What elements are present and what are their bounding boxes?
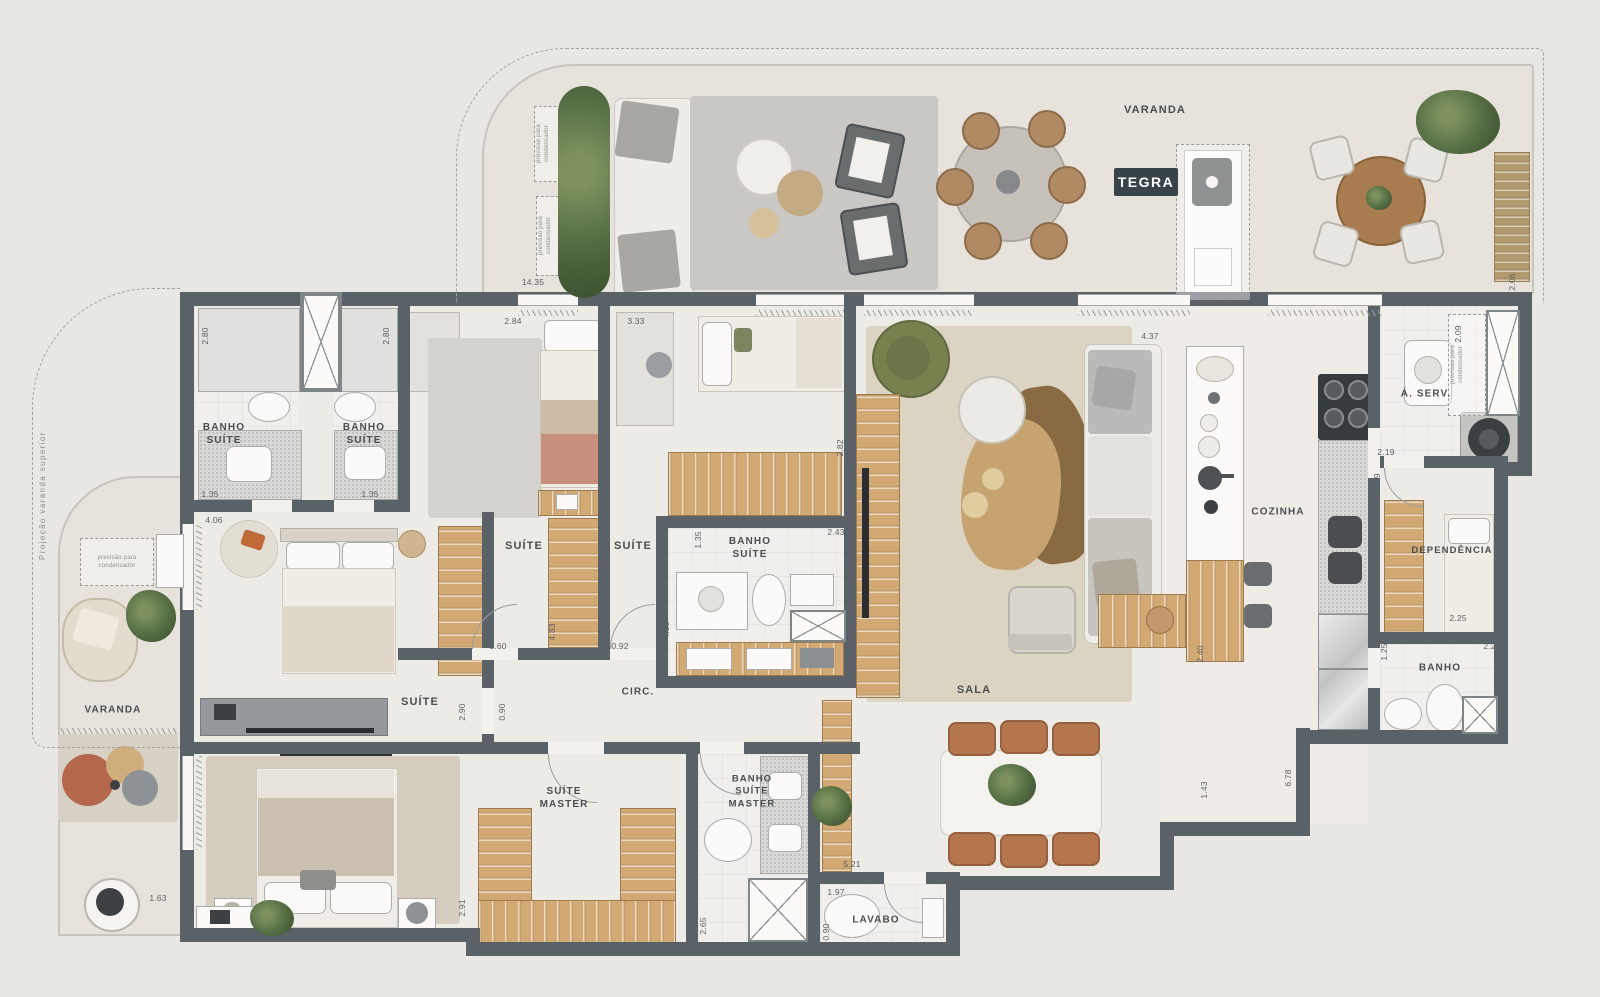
bed-blanket (541, 434, 605, 484)
window (518, 294, 578, 306)
bed-foot-bench (258, 770, 394, 798)
room-label-suite-1: SUÍTE (401, 695, 439, 709)
nightstand-decor (406, 902, 428, 924)
area-rug (428, 338, 542, 518)
shower (334, 308, 398, 392)
dimension-label: 2.65 (698, 917, 708, 934)
door-opening (252, 500, 292, 512)
dining-chair (1000, 720, 1048, 754)
dimension-label: 3.33 (627, 316, 644, 326)
dimension-label: 2.84 (504, 316, 521, 326)
tv-screen (862, 468, 869, 618)
wall (398, 292, 410, 512)
window (1268, 294, 1382, 306)
dimension-label: 4.06 (205, 515, 222, 525)
wall (656, 516, 668, 688)
kitchen-sink (1328, 516, 1362, 548)
corner-plant (1416, 90, 1500, 154)
pan-handle (1220, 474, 1234, 478)
dimension-label: 1.63 (149, 893, 166, 903)
projection-outline-left (32, 288, 181, 748)
wall (180, 928, 480, 942)
dimension-label: 6.53 (633, 743, 650, 753)
toilet (334, 392, 376, 422)
dimension-label: 2.09 (1372, 473, 1382, 490)
plant (812, 786, 852, 826)
shower-box (1462, 696, 1498, 734)
bed-pillow (702, 322, 732, 386)
dimension-label: 2.82 (835, 439, 845, 456)
room-label-banho-suite-1: BANHO SUÍTE (203, 421, 245, 447)
wall (946, 876, 1174, 890)
provision-annotation: previsão para condensador (98, 554, 137, 570)
dimension-label: 4.83 (547, 623, 557, 640)
room-label-suite-3: SUÍTE (614, 539, 652, 553)
kettle (1204, 500, 1218, 514)
plate (1200, 414, 1218, 432)
room-label-banho-suite-master: BANHO SUÍTE MASTER (729, 773, 776, 810)
dining-chair (1052, 832, 1100, 866)
mirror-wardrobe (1318, 614, 1372, 730)
wardrobe (668, 452, 842, 516)
curtain (756, 310, 844, 316)
dimension-label: 0.90 (821, 923, 831, 940)
projection-outline-top (456, 48, 1544, 303)
door-opening (548, 742, 604, 754)
room-label-lavabo: LAVABO (852, 914, 899, 927)
wall (808, 872, 820, 956)
washbasin (922, 898, 944, 938)
room-label-banho-suite-2: BANHO SUÍTE (343, 421, 385, 447)
dimension-label: 1.43 (1199, 781, 1209, 798)
shower-box (748, 878, 808, 942)
fruit-bowl (1196, 356, 1234, 382)
floor-plan: Projeção varanda superior previsão para … (0, 0, 1600, 997)
window (1078, 294, 1190, 306)
dimension-label: 1.35 (693, 531, 703, 548)
table-plant (988, 764, 1036, 806)
dimension-label: 1.35 (201, 489, 218, 499)
tegra-logo: TEGRA (1114, 168, 1178, 196)
room-label-cozinha: COZINHA (1251, 506, 1304, 519)
dimension-label: 14.35 (522, 277, 544, 287)
washbasin (1384, 698, 1422, 730)
dining-chair (948, 832, 996, 866)
dimension-label: 1.99 (669, 743, 686, 753)
room-label-sala: SALA (957, 683, 991, 697)
cabinet-box (686, 648, 732, 670)
dining-chair (1000, 834, 1048, 868)
wall (1160, 822, 1310, 836)
dimension-label: 2.09 (1453, 325, 1463, 342)
sink-basin (768, 824, 802, 852)
table-decor (982, 468, 1004, 490)
dimension-label: 1.60 (489, 641, 506, 651)
door-opening (700, 742, 744, 754)
round-rug (220, 520, 278, 578)
dimension-label: 0.92 (611, 641, 628, 651)
bed-blanket (796, 318, 842, 388)
pan (1198, 466, 1222, 490)
faucet (1208, 392, 1220, 404)
projection-annotation: Projeção varanda superior (38, 320, 47, 560)
wall (186, 742, 860, 754)
dimension-label: 5.21 (843, 859, 860, 869)
room-label-varanda-left: VARANDA (85, 704, 142, 717)
accent-cushion (300, 870, 336, 890)
sink-basin (344, 446, 386, 480)
bar-stool (1244, 562, 1272, 586)
bar-stool (1244, 604, 1272, 628)
wall (598, 292, 610, 660)
table-plant (1366, 186, 1392, 210)
rug-fringe (58, 728, 178, 734)
room-label-varanda-top: VARANDA (1124, 103, 1186, 117)
bed-headboard (280, 528, 398, 542)
toilet (248, 392, 290, 422)
dimension-label: 4.37 (1141, 331, 1158, 341)
open-book (556, 494, 578, 510)
wall (656, 516, 844, 528)
toilet (704, 818, 752, 862)
bidet (790, 574, 834, 606)
bed-pillow (286, 542, 340, 570)
armchair-back (1008, 634, 1072, 650)
dimension-label: 1.97 (827, 887, 844, 897)
dimension-label: 2.43 (827, 527, 844, 537)
shaft (300, 292, 342, 392)
wall (656, 676, 844, 688)
hanging-chair-seat (96, 888, 124, 916)
door-opening (884, 872, 926, 884)
toilet (1426, 684, 1464, 732)
burner (1348, 380, 1368, 400)
curtain (1078, 310, 1190, 316)
dimension-label: 2.22 (1483, 641, 1500, 651)
curtain (196, 524, 202, 610)
wall (1368, 306, 1380, 428)
tegra-logo-text: TEGRA (1118, 174, 1175, 190)
room-label-banho-suite-3: BANHO SUÍTE (729, 535, 771, 561)
dimension-label: 2.06 (1507, 273, 1517, 290)
dining-chair (948, 722, 996, 756)
shower (198, 308, 300, 392)
bed-blanket (541, 400, 605, 434)
dimension-label: 6.78 (1283, 769, 1293, 786)
tank-basin (1414, 356, 1442, 384)
table-decor (962, 492, 988, 518)
dimension-label: 2.40 (1195, 645, 1205, 662)
shower-box (790, 610, 846, 642)
dimension-label: 4.83 (661, 621, 671, 638)
laptop (210, 910, 230, 924)
wall (1368, 478, 1380, 730)
grill-provision-area (1176, 144, 1250, 300)
dimension-label: 0.90 (497, 703, 507, 720)
tv-screen (246, 728, 374, 733)
wall (686, 754, 698, 942)
window (182, 756, 194, 850)
laptop (214, 704, 236, 720)
sofa-seat (1088, 436, 1152, 516)
desk-chair (646, 352, 672, 378)
table-lamp (1146, 606, 1174, 634)
bed-blanket (282, 606, 394, 672)
toilet (752, 574, 786, 626)
curtain (1268, 310, 1382, 316)
bed-pillow (1448, 518, 1490, 544)
room-label-banho: BANHO (1419, 662, 1461, 675)
wall (1518, 292, 1532, 476)
dimension-label: 2.91 (457, 899, 467, 916)
door-opening (1384, 456, 1424, 468)
floor-lamp (110, 780, 120, 790)
bed-pillow (330, 882, 392, 914)
round-side-table (958, 376, 1026, 444)
room-label-suite-2: SUÍTE (505, 539, 543, 553)
cabinet-box (800, 648, 834, 668)
wall (946, 884, 960, 956)
condenser-provision-box: previsão para condensador (80, 538, 154, 586)
burner (1348, 408, 1368, 428)
accent-pillow (734, 328, 752, 352)
bedroom-plant (250, 900, 294, 936)
sofa-pillow (1091, 365, 1136, 410)
dimension-label: 2.25 (1449, 613, 1466, 623)
kitchen-sink (1328, 552, 1362, 584)
dimension-label: 1.35 (361, 489, 378, 499)
dimension-label: 2.83 (399, 489, 409, 506)
dimension-label: 2.80 (200, 327, 210, 344)
door-opening (334, 500, 374, 512)
sink-basin (698, 586, 724, 612)
bed-pillow (544, 320, 602, 352)
dimension-label: 7.93 (1163, 843, 1173, 860)
utility-cabinet (1486, 310, 1520, 416)
condenser-spot (156, 534, 184, 588)
dimension-label: 2.19 (1377, 447, 1394, 457)
dimension-label: 2.80 (381, 327, 391, 344)
door-opening (482, 688, 494, 734)
burner (1324, 380, 1344, 400)
gray-pouf (122, 770, 158, 806)
room-label-area-servico: Á. SERV. (1401, 388, 1452, 401)
round-nightstand (398, 530, 426, 558)
cabinet-box (746, 648, 792, 670)
armchair-seat (886, 336, 930, 380)
bed-pillow (342, 542, 394, 570)
balcony-plant (126, 590, 176, 642)
dimension-label: 1.25 (1379, 643, 1389, 660)
wardrobe (1384, 500, 1424, 634)
window (756, 294, 844, 306)
burner (1324, 408, 1344, 428)
closet-wardrobe (478, 900, 676, 946)
sink-basin (226, 446, 272, 482)
room-label-circulacao: CIRC. (622, 686, 655, 699)
curtain (196, 756, 202, 850)
wall (1296, 728, 1310, 836)
mirror-divider (1318, 668, 1370, 670)
dimension-label: 2.90 (457, 703, 467, 720)
hedge-planter (558, 86, 610, 298)
wall (466, 942, 960, 956)
bed-blanket (258, 798, 394, 876)
room-label-dependencia: DEPENDÊNCIA (1411, 545, 1492, 557)
plate (1198, 436, 1220, 458)
washer-drum (1479, 429, 1499, 449)
curtain (518, 310, 578, 316)
window (864, 294, 974, 306)
dining-chair (1052, 722, 1100, 756)
room-label-suite-master: SUÍTE MASTER (540, 785, 589, 811)
curtain (864, 310, 974, 316)
